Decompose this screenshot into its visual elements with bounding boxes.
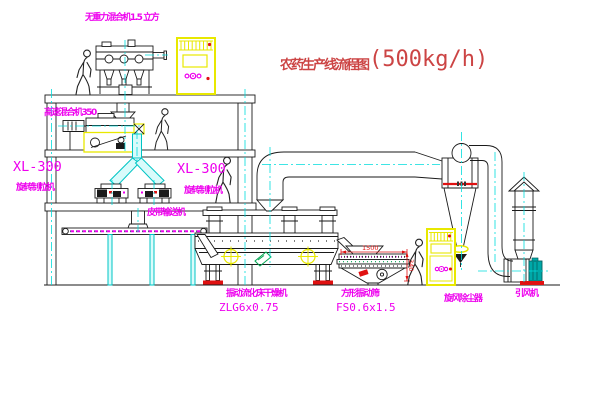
granulator-left	[95, 184, 128, 203]
label-fluid-bed-dryer: 振动流化床干燥机	[226, 290, 286, 299]
flow-diagram: 农药生产线流程图 (500kg/h) 无重力混合机1.5 立方 高速混合机350…	[0, 0, 600, 403]
dimension-screen-height: 340	[407, 259, 415, 271]
label-granulator-model-right: XL-300	[177, 163, 226, 177]
title-text: 农药生产线流程图	[280, 54, 368, 73]
gravity-free-mixer	[96, 40, 167, 95]
label-vibrating-screen-model: FS0.6x1.5	[336, 302, 396, 313]
granulator-right	[138, 184, 171, 203]
label-belt-conveyor: 皮带输送机	[147, 209, 185, 218]
fluid-bed-dryer	[195, 207, 338, 285]
title-capacity: (500kg/h)	[369, 47, 488, 72]
diagram-title: 农药生产线流程图 (500kg/h)	[280, 47, 488, 73]
worker-figure	[76, 50, 91, 94]
label-granulator-left: 旋转制粒机	[16, 184, 54, 193]
label-induced-draft-fan: 引风机	[515, 290, 538, 299]
label-gravity-mixer: 无重力混合机1.5 立方	[85, 14, 158, 23]
label-cyclone: 旋风除尘器	[444, 295, 482, 304]
label-granulator-right: 旋转制粒机	[184, 187, 222, 196]
label-granulator-model-left: XL-300	[13, 161, 62, 175]
control-cabinet-top	[177, 38, 215, 94]
dimension-screen-length: 1500	[362, 244, 379, 252]
control-cabinet-ground	[427, 229, 455, 285]
label-vibrating-screen: 方形振动筛	[341, 290, 379, 299]
label-high-speed-mixer: 高速混合机350	[44, 109, 96, 118]
belt-conveyor	[62, 228, 207, 285]
exhaust-duct	[257, 152, 442, 211]
label-fluid-bed-dryer-model: ZLG6x0.75	[219, 302, 279, 313]
worker-figure	[155, 109, 169, 150]
